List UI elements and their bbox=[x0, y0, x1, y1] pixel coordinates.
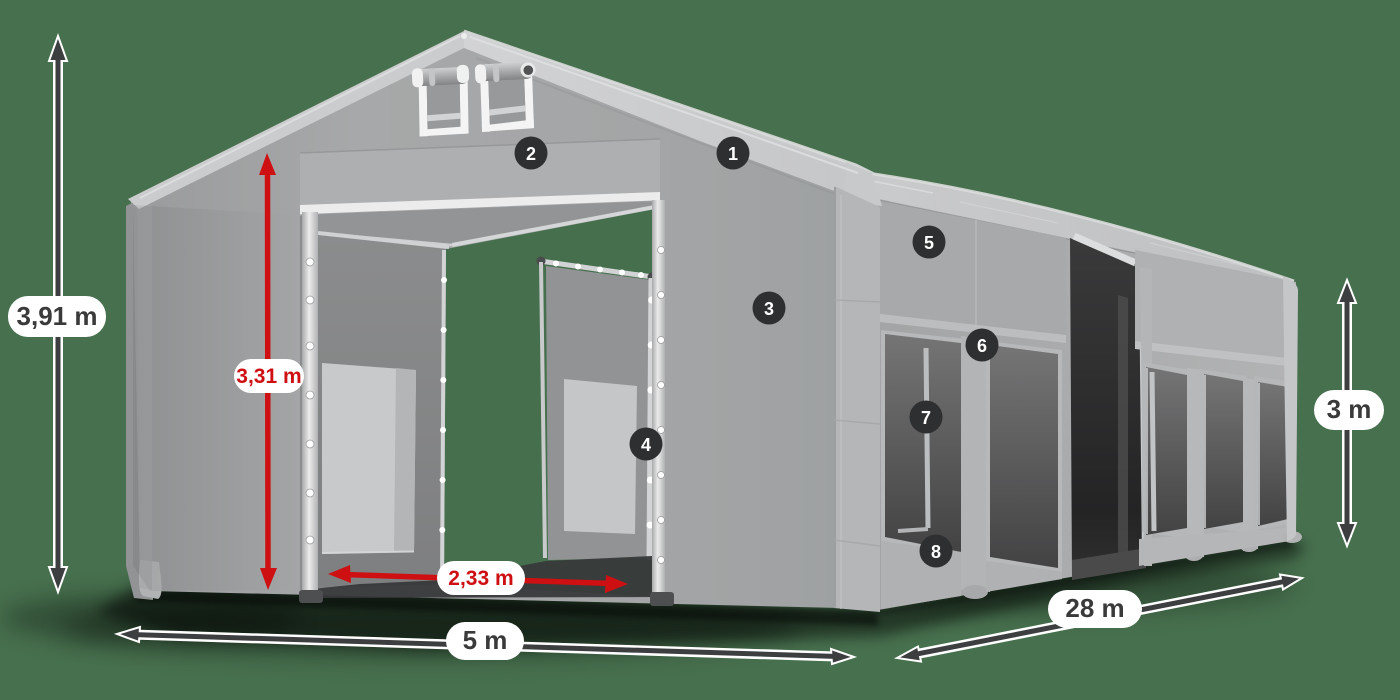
svg-text:1: 1 bbox=[728, 144, 738, 164]
svg-text:6: 6 bbox=[977, 336, 987, 356]
svg-text:3: 3 bbox=[764, 299, 774, 319]
svg-text:2: 2 bbox=[526, 144, 536, 164]
svg-text:8: 8 bbox=[931, 542, 941, 562]
svg-text:2,33 m: 2,33 m bbox=[448, 567, 513, 590]
svg-text:3,91 m: 3,91 m bbox=[17, 301, 98, 331]
svg-text:28 m: 28 m bbox=[1065, 593, 1124, 623]
svg-text:7: 7 bbox=[921, 408, 931, 428]
svg-text:3 m: 3 m bbox=[1327, 394, 1372, 424]
svg-text:5: 5 bbox=[924, 233, 934, 253]
svg-text:4: 4 bbox=[641, 435, 651, 455]
svg-text:5 m: 5 m bbox=[463, 625, 508, 655]
svg-text:3,31 m: 3,31 m bbox=[236, 365, 301, 388]
